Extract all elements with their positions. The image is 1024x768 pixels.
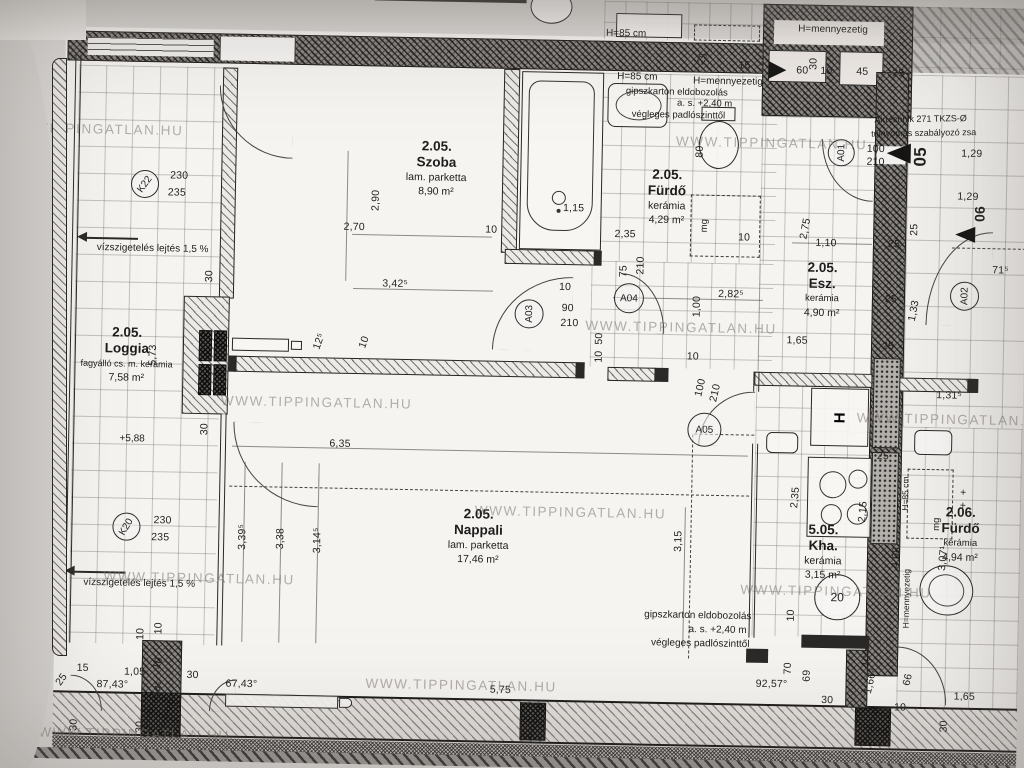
dimension-label: 25 xyxy=(888,238,900,250)
shaft-cell xyxy=(213,364,227,395)
dimension-label: 05 xyxy=(911,147,931,167)
dimension-label: 3,42⁵ xyxy=(382,278,408,290)
dimension-label: 30 xyxy=(203,270,215,282)
room-number: 2.05. xyxy=(648,167,687,184)
radiator-valve xyxy=(291,341,302,350)
door-jamb xyxy=(575,362,584,378)
wall-pier xyxy=(654,368,668,382)
wall-pier xyxy=(746,649,768,663)
dimension-label: 92,57° xyxy=(756,678,788,691)
room-area: 3,15 m² xyxy=(804,568,842,583)
page-corner xyxy=(0,0,86,40)
room-number: 2.05. xyxy=(805,260,841,277)
room-label-kha: 5.05. Kha. kerámia 3,15 m² xyxy=(804,522,843,583)
dimension-label: 30 xyxy=(938,720,950,732)
note-h-ceiling: H=mennyezetig xyxy=(693,75,763,87)
loggia-glazing-top xyxy=(87,37,213,57)
dimension-label: 10 xyxy=(593,351,605,363)
dimension-label: 210 xyxy=(866,156,884,168)
dimension-label: 1,31⁵ xyxy=(936,389,962,401)
room-name: Esz. xyxy=(804,276,840,293)
room-name: Szoba xyxy=(406,154,467,171)
dimension-label: 10 xyxy=(485,223,497,235)
room-area: 4,90 m² xyxy=(804,306,840,321)
dimension-label: 2,70 xyxy=(344,221,365,233)
fridge-label: H xyxy=(831,412,848,423)
shaft-cell xyxy=(198,364,212,395)
door-opening-top xyxy=(219,36,295,61)
dimension-label: 25 xyxy=(877,450,889,462)
dimension-label: 6,35 xyxy=(329,438,350,450)
partition-hall xyxy=(607,367,655,382)
dimension-label: 15 xyxy=(738,59,750,71)
thermal-break-block xyxy=(519,702,546,740)
dimension-label: 2,35 xyxy=(788,486,802,508)
note-gipszkarton: végleges padlószinttől xyxy=(651,637,750,650)
upper-flat-wall-edge xyxy=(375,0,527,3)
room-area: 4,29 m² xyxy=(647,213,686,228)
room-name: Fürdő xyxy=(941,520,980,537)
kitchen-partition xyxy=(753,372,759,392)
dimension-label: 30 xyxy=(807,58,819,70)
note-h85: H=85 cm xyxy=(606,28,647,40)
room-finish: kerámia xyxy=(804,292,840,307)
bathtub-tap xyxy=(557,209,561,213)
dimension-label: 87,43° xyxy=(96,678,128,691)
dimension-label: 15 xyxy=(77,662,89,674)
dimension-label: 230 xyxy=(153,514,171,526)
dimension-label: 1,29 xyxy=(961,148,982,160)
burner xyxy=(819,471,847,499)
note-gipszkarton: a. s. +2,40 m xyxy=(688,624,746,636)
kitchen-sink xyxy=(766,432,798,454)
dimension-label: 25 xyxy=(908,224,920,236)
room-area: 7,58 m² xyxy=(80,370,172,386)
dimension-label: 2,82⁵ xyxy=(718,288,744,300)
note-airtechnik: túlnyomás szabályozó zsa xyxy=(871,127,976,139)
wall-insulation-block xyxy=(870,452,899,545)
dimension-label: 1,05 xyxy=(124,666,145,678)
triangle-marker-icon xyxy=(887,143,911,163)
dimension-label: 10 xyxy=(152,622,164,634)
note-airtechnik: Airtechnik 271 TKZS-Ø xyxy=(874,113,967,124)
dimension-label: 50 xyxy=(593,333,605,345)
door-jamb xyxy=(227,356,236,372)
dimension-label: 71⁵ xyxy=(992,264,1009,276)
dimension-label: 25 xyxy=(885,293,897,305)
note-h85-vertical: H=85 cm xyxy=(900,476,911,510)
dimension-label: 3,15 xyxy=(672,531,684,552)
dimension-label: 3,07¹ xyxy=(936,545,950,571)
dimension-label: 75 xyxy=(617,265,629,277)
dimension-label: 25 xyxy=(892,67,904,79)
dimension-label: 10 xyxy=(687,350,699,362)
note-gipszkarton: végleges padlószinttől xyxy=(632,109,726,122)
note-gipszkarton: a. s. +2,40 m xyxy=(677,98,732,110)
dimension-label: 1,65 xyxy=(954,691,975,703)
dimension-label: 06 xyxy=(971,206,987,222)
bathtub-inner xyxy=(526,80,595,231)
dimension-label: 2,15 xyxy=(856,501,870,523)
scan-edge-hatch xyxy=(52,58,67,656)
room-area: 17,46 m² xyxy=(447,552,508,567)
wall-insulation-block xyxy=(872,358,901,449)
top-right-shading xyxy=(909,7,1024,75)
floorplan-photo: mg H 20 mg K22 K20 A03 A04 A05 A01 xyxy=(0,0,1024,768)
radiator xyxy=(232,338,289,352)
dimension-label: 90 xyxy=(562,302,574,314)
dimension-label: 10 xyxy=(820,65,832,77)
note-waterproofing: vízszigetelés lejtés 1,5 % xyxy=(97,242,209,255)
dimension-label: 45 xyxy=(856,66,868,78)
room-number: 2.05. xyxy=(406,138,467,155)
room-finish: lam. parketta xyxy=(448,538,509,553)
dimension-label: 1,65 xyxy=(786,334,807,346)
sliding-door-handle xyxy=(339,698,352,708)
dimension-label: 230 xyxy=(170,169,188,181)
dimension-label: 30 xyxy=(186,669,198,681)
room-finish: fagyálló cs. m. kerámia xyxy=(80,356,172,372)
dimension-label: 1,15 xyxy=(563,202,584,214)
bathtub xyxy=(519,71,604,251)
floorplan-drawing: mg H 20 mg K22 K20 A03 A04 A05 A01 xyxy=(0,0,1024,768)
dimension-label: 210 xyxy=(560,317,578,329)
dimension-label: 235 xyxy=(151,531,169,543)
dimension-label: 70 xyxy=(782,662,794,674)
room-name: Nappali xyxy=(448,522,509,539)
dimension-label: 69 xyxy=(801,670,813,682)
burner xyxy=(848,470,867,489)
dimension-label: + xyxy=(960,487,967,499)
dimension-label: 30 xyxy=(198,423,210,435)
note-level: +5,88 xyxy=(119,433,145,444)
dimension-label: 1,29 xyxy=(957,191,978,203)
room-finish: lam. parketta xyxy=(406,170,467,185)
sliding-door-leaf xyxy=(225,694,338,709)
dimension-label: 10 xyxy=(559,281,571,293)
note-h-ceiling: H=mennyezetig xyxy=(798,23,868,35)
dimension-label: 10 xyxy=(785,609,797,621)
dimension-label: 3,39⁵ xyxy=(236,524,248,550)
note-gipszkarton: gipszkarton eldobozolás xyxy=(644,609,751,622)
room-name: Loggia xyxy=(81,340,173,358)
triangle-marker-icon xyxy=(768,61,786,79)
thermal-break-block xyxy=(854,708,891,747)
door-jamb xyxy=(594,251,602,266)
dimension-label: + xyxy=(960,500,967,512)
dimension-label: 2,35 xyxy=(614,228,635,240)
dimension-label: 25 xyxy=(882,340,894,352)
room-name: Fürdő xyxy=(648,183,687,200)
dimension-label: 210 xyxy=(634,256,646,274)
partition-bath-south xyxy=(505,249,597,266)
room-number: 5.05. xyxy=(805,522,843,539)
dimension-label: 10 xyxy=(894,701,906,713)
fixture-206 xyxy=(914,430,952,456)
shaft-cell xyxy=(199,330,213,361)
upper-flat-outline xyxy=(694,24,760,41)
washing-machine-label: mg xyxy=(699,219,710,232)
triangle-marker-icon xyxy=(955,227,975,243)
upper-flat-basin xyxy=(530,0,573,24)
dimension-label: 5,73 xyxy=(147,344,159,365)
dimension-label: 10 xyxy=(134,628,146,640)
room-finish: kerámia xyxy=(804,554,842,569)
dimension-label: 2,90 xyxy=(370,190,382,211)
dimension-label: 30 xyxy=(821,694,833,706)
room-label-furdo: 2.05. Fürdő kerámia 4,29 m² xyxy=(647,167,686,228)
dimension-label: 100 xyxy=(867,143,885,155)
dimension-label: 1,10 xyxy=(815,237,836,249)
dimension-label: 235 xyxy=(168,186,186,198)
shaft-cell xyxy=(214,330,228,361)
room-label-szoba: 2.05. Szoba lam. parketta 8,90 m² xyxy=(405,138,467,199)
note-h85: H=85 cm xyxy=(617,71,658,83)
room-area: 8,90 m² xyxy=(405,184,466,199)
room-name: Kha. xyxy=(804,538,842,555)
door-jamb xyxy=(967,379,978,393)
dimension-label: 67,43° xyxy=(225,678,257,691)
partition-kitchen-top xyxy=(754,372,872,388)
room-label-loggia: 2.05. Loggia fagyálló cs. m. kerámia 7,5… xyxy=(80,324,173,386)
dimension-label: 10 xyxy=(738,231,750,243)
dimension-label: 1,00 xyxy=(691,296,703,317)
dimension-label: 3,38 xyxy=(274,528,286,549)
room-number: 2.05. xyxy=(81,324,173,342)
room-finish: kerámia xyxy=(647,199,686,214)
dimension-label: 4,08 xyxy=(889,546,903,568)
dimension-label: 3,14⁵ xyxy=(311,527,323,553)
room-label-esz: 2.05. Esz. kerámia 4,90 m² xyxy=(804,260,841,321)
kitchen-south-wall xyxy=(801,635,869,649)
